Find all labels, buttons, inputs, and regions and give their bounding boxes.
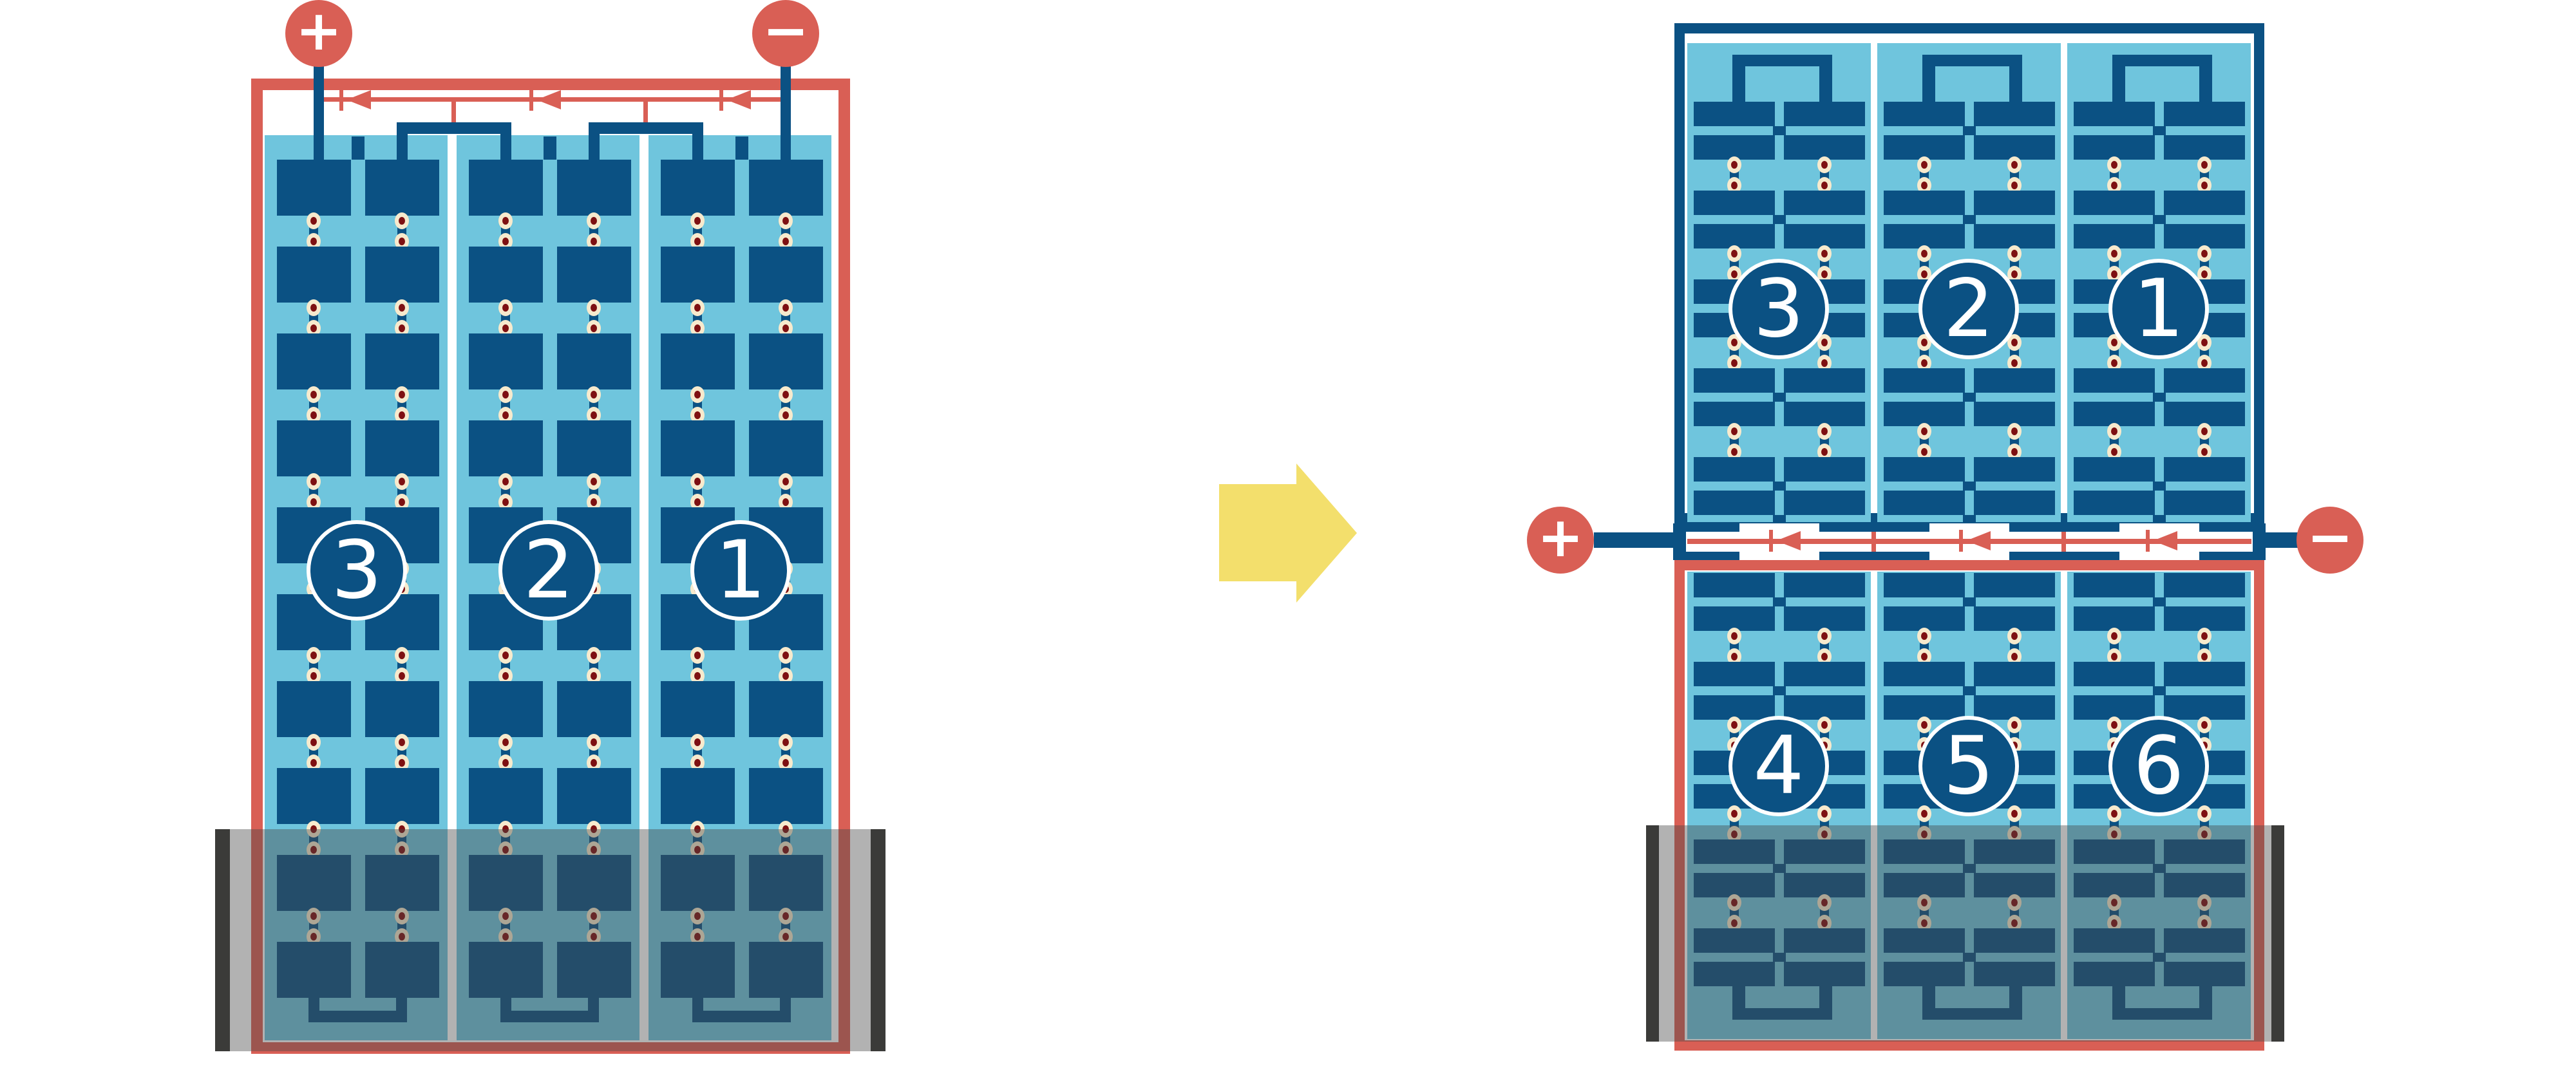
interstring-busbar-bridge xyxy=(397,122,511,160)
solar-cell xyxy=(749,160,823,216)
solder-dot-core xyxy=(399,651,405,659)
solder-dot-core xyxy=(782,324,789,332)
solar-cell xyxy=(277,768,351,824)
solder-dot xyxy=(2107,628,2121,644)
solder-dot xyxy=(587,647,601,664)
solder-dot-core xyxy=(694,738,701,746)
solder-dot-core xyxy=(2111,161,2117,169)
solder-dot xyxy=(307,734,321,751)
solder-dot xyxy=(395,734,409,751)
solder-dot-core xyxy=(1921,721,1927,729)
solder-dot xyxy=(1817,423,1832,440)
solar-cell xyxy=(2074,573,2155,597)
solar-cell xyxy=(469,768,543,824)
junction-end-tab xyxy=(1678,552,1739,560)
minus-icon: − xyxy=(762,0,809,64)
solar-cell xyxy=(2164,457,2245,482)
solder-dot xyxy=(587,386,601,403)
solder-dot xyxy=(307,212,321,229)
solder-dot-core xyxy=(1821,250,1828,258)
junction-busbar-tab xyxy=(2009,552,2119,560)
junction-busbar-tab xyxy=(1819,523,1929,532)
solder-dot xyxy=(690,386,705,403)
bypass-diode-icon xyxy=(719,89,755,111)
solar-cell xyxy=(1784,491,1865,515)
busbar-leg xyxy=(500,134,511,160)
solder-dot xyxy=(1817,628,1832,644)
solder-dot-core xyxy=(782,498,789,506)
right-negative-terminal: − xyxy=(2297,507,2363,574)
solder-dot xyxy=(498,212,513,229)
solder-dot xyxy=(2107,245,2121,262)
solder-dot-core xyxy=(502,324,509,332)
solder-dot xyxy=(395,386,409,403)
solar-cell xyxy=(2074,457,2155,482)
solar-cell xyxy=(277,247,351,303)
solder-dot xyxy=(587,299,601,316)
solder-dot xyxy=(1817,805,1832,822)
solar-cell xyxy=(557,160,631,216)
solar-cell xyxy=(1784,457,1865,482)
solder-dot-core xyxy=(2111,448,2117,456)
solder-dot-core xyxy=(694,651,701,659)
diode-tap-stub xyxy=(2061,530,2066,552)
center-link-stub xyxy=(1773,215,1786,224)
solar-cell xyxy=(661,247,735,303)
solder-dot-core xyxy=(1821,632,1828,640)
diode-cathode-bar xyxy=(1959,530,1963,552)
solder-dot-core xyxy=(1731,250,1738,258)
solder-dot xyxy=(1727,717,1741,733)
center-link-stub xyxy=(1773,597,1786,606)
solder-dot-core xyxy=(2011,448,2018,456)
center-link-stub xyxy=(1773,126,1786,135)
solder-dot xyxy=(307,386,321,403)
solder-dot-core xyxy=(694,324,701,332)
solder-dot-core xyxy=(694,238,701,245)
right-top-string-label-3: 3 xyxy=(1728,259,1829,359)
solder-dot-core xyxy=(502,478,509,485)
solder-dot-core xyxy=(1821,810,1828,818)
solar-cell xyxy=(469,247,543,303)
solder-dot-core xyxy=(2011,270,2018,278)
solar-cell xyxy=(1784,102,1865,126)
right-shading-bar-left xyxy=(1646,825,1659,1042)
solder-dot xyxy=(2007,245,2022,262)
center-link-stub xyxy=(1963,215,1976,224)
solder-dot-core xyxy=(782,304,789,312)
solar-cell xyxy=(661,333,735,389)
left-negative-wire xyxy=(781,61,791,160)
solder-dot-core xyxy=(2201,653,2208,660)
solar-cell xyxy=(1884,491,1965,515)
solder-dot-core xyxy=(2111,250,2117,258)
solder-dot xyxy=(2007,717,2022,733)
solar-cell xyxy=(749,247,823,303)
center-link-stub xyxy=(1963,393,1976,402)
solder-dot-core xyxy=(782,738,789,746)
solder-dot-core xyxy=(2111,359,2117,367)
minus-icon: − xyxy=(2307,504,2353,571)
solder-dot xyxy=(779,647,793,664)
solar-cell xyxy=(1884,457,1965,482)
center-link-stub xyxy=(2153,482,2166,491)
junction-feed-stub xyxy=(1963,515,1976,522)
solder-dot-core xyxy=(2011,339,2018,346)
diode-arrow xyxy=(346,90,371,109)
string-number: 5 xyxy=(1944,718,1994,814)
solar-cell xyxy=(1974,457,2055,482)
solder-dot xyxy=(1917,805,1931,822)
solder-dot-core xyxy=(2011,161,2018,169)
solder-dot xyxy=(1817,245,1832,262)
solar-cell xyxy=(1694,573,1775,597)
busbar-leg xyxy=(692,134,703,160)
solar-cell xyxy=(1884,102,1965,126)
solder-dot-core xyxy=(1731,632,1738,640)
solar-cell xyxy=(661,681,735,737)
solar-cell xyxy=(365,420,439,476)
solder-dot-core xyxy=(2201,448,2208,456)
solder-dot xyxy=(2197,423,2211,440)
right-positive-wire xyxy=(1594,532,1679,548)
solder-dot-core xyxy=(502,651,509,659)
solder-dot-core xyxy=(1731,653,1738,660)
solder-dot-core xyxy=(1921,632,1927,640)
solder-dot-core xyxy=(502,498,509,506)
solar-cell xyxy=(1784,662,1865,686)
bypass-diode-icon xyxy=(339,89,375,111)
solder-dot-core xyxy=(502,672,509,680)
solder-dot-core xyxy=(1731,182,1738,189)
solar-cell xyxy=(2074,191,2155,215)
solder-dot-core xyxy=(2011,810,2018,818)
solder-dot xyxy=(690,647,705,664)
solar-cell xyxy=(557,681,631,737)
diode-tap-stub xyxy=(451,102,456,124)
solder-dot xyxy=(498,734,513,751)
solar-cell xyxy=(277,420,351,476)
center-link-stub xyxy=(1963,126,1976,135)
right-negative-wire xyxy=(2260,532,2298,548)
solder-dot-core xyxy=(2111,182,2117,189)
busbar-leg xyxy=(397,134,408,160)
busbar-bar xyxy=(397,122,511,134)
junction-feed-stub xyxy=(1773,515,1786,522)
center-link-stub xyxy=(2153,126,2166,135)
left-string-label-3: 3 xyxy=(307,520,407,621)
solder-dot xyxy=(1917,628,1931,644)
solder-dot-core xyxy=(310,238,317,245)
solder-dot-core xyxy=(1821,182,1828,189)
solder-dot xyxy=(2107,805,2121,822)
solder-dot-core xyxy=(2111,653,2117,660)
solder-dot-core xyxy=(591,391,597,398)
diode-arrow xyxy=(1966,531,1991,550)
solder-dot xyxy=(587,212,601,229)
solder-dot-core xyxy=(502,759,509,767)
solder-dot-core xyxy=(1821,448,1828,456)
solder-dot-core xyxy=(591,738,597,746)
solder-dot-core xyxy=(399,672,405,680)
solder-dot xyxy=(2007,423,2022,440)
string-top-inner-tab xyxy=(544,136,556,160)
solar-cell xyxy=(365,333,439,389)
solder-dot-core xyxy=(1921,427,1927,435)
solar-cell xyxy=(2164,102,2245,126)
solar-cell xyxy=(277,160,351,216)
solder-dot-core xyxy=(1921,161,1927,169)
solder-dot xyxy=(2107,423,2121,440)
solder-dot-core xyxy=(399,478,405,485)
solar-cell xyxy=(661,160,735,216)
busbar-leg xyxy=(589,134,600,160)
diode-cathode-bar xyxy=(339,89,343,111)
solder-dot-core xyxy=(694,759,701,767)
solar-cell xyxy=(749,768,823,824)
solar-cell xyxy=(1784,573,1865,597)
solder-dot-core xyxy=(310,304,317,312)
solder-dot-core xyxy=(1921,270,1927,278)
solar-cell xyxy=(1974,573,2055,597)
solar-cell xyxy=(277,681,351,737)
solar-cell xyxy=(1974,491,2055,515)
bypass-diode-icon xyxy=(2146,530,2182,552)
solder-dot xyxy=(779,212,793,229)
solar-cell xyxy=(469,681,543,737)
solder-dot xyxy=(2007,156,2022,173)
solder-dot xyxy=(1917,156,1931,173)
string-number: 1 xyxy=(715,522,766,619)
solder-dot-core xyxy=(502,738,509,746)
solder-dot-core xyxy=(591,304,597,312)
solar-cell xyxy=(365,681,439,737)
solder-dot-core xyxy=(2011,427,2018,435)
solder-dot-core xyxy=(1921,339,1927,346)
solder-dot-core xyxy=(399,304,405,312)
solar-cell xyxy=(2074,662,2155,686)
solder-dot xyxy=(690,299,705,316)
solder-dot-core xyxy=(782,651,789,659)
solar-cell xyxy=(749,681,823,737)
solder-dot-core xyxy=(310,411,317,419)
solder-dot-core xyxy=(1731,721,1738,729)
junction-busbar-tab xyxy=(1819,552,1929,560)
solder-dot xyxy=(1817,156,1832,173)
solder-dot xyxy=(2007,805,2022,822)
diode-arrow xyxy=(1776,531,1801,550)
solder-dot-core xyxy=(1731,161,1738,169)
solar-cell xyxy=(2164,368,2245,393)
center-link-stub xyxy=(1963,482,1976,491)
solder-dot xyxy=(779,386,793,403)
solar-cell xyxy=(661,420,735,476)
solar-cell xyxy=(1694,662,1775,686)
solder-dot xyxy=(498,386,513,403)
right-positive-terminal: + xyxy=(1527,507,1594,574)
center-link-stub xyxy=(1963,686,1976,695)
junction-end-tab xyxy=(2199,552,2260,560)
solder-dot-core xyxy=(2011,653,2018,660)
solder-dot-core xyxy=(2201,721,2208,729)
solder-dot xyxy=(307,473,321,490)
solder-dot-core xyxy=(310,498,317,506)
solder-dot xyxy=(2197,628,2211,644)
solar-cell xyxy=(1974,662,2055,686)
solar-cell xyxy=(469,420,543,476)
solder-dot-core xyxy=(1921,250,1927,258)
solder-dot-core xyxy=(591,217,597,225)
solar-cell xyxy=(1884,662,1965,686)
solder-dot-core xyxy=(694,498,701,506)
busbar-bar xyxy=(589,122,703,134)
solder-dot-core xyxy=(1731,339,1738,346)
solder-dot-core xyxy=(2011,359,2018,367)
solder-dot xyxy=(1917,245,1931,262)
center-link-stub xyxy=(1773,393,1786,402)
junction-feed-stub xyxy=(2153,515,2166,522)
string-top-inner-tab xyxy=(352,136,365,160)
solder-dot-core xyxy=(782,478,789,485)
turnaround-busbar-bar xyxy=(1732,55,1832,66)
solder-dot xyxy=(498,473,513,490)
solar-cell xyxy=(1784,368,1865,393)
solder-dot xyxy=(1727,805,1741,822)
solar-cell xyxy=(1884,368,1965,393)
turnaround-busbar-leg xyxy=(2199,66,2212,103)
solder-dot-core xyxy=(782,411,789,419)
solder-dot-core xyxy=(1731,359,1738,367)
solder-dot-core xyxy=(694,672,701,680)
solar-cell xyxy=(469,160,543,216)
string-top-inner-tab xyxy=(735,136,748,160)
solar-cell xyxy=(365,247,439,303)
solder-dot-core xyxy=(1921,810,1927,818)
solder-dot-core xyxy=(591,324,597,332)
solar-cell xyxy=(2074,368,2155,393)
plus-icon: + xyxy=(296,0,342,64)
solar-cell xyxy=(2074,491,2155,515)
solder-dot-core xyxy=(591,759,597,767)
right-bottom-string-label-6: 6 xyxy=(2108,716,2209,816)
solder-dot-core xyxy=(2111,721,2117,729)
solder-dot-core xyxy=(399,217,405,225)
junction-busbar-tab xyxy=(2009,523,2119,532)
diode-cathode-bar xyxy=(529,89,533,111)
turnaround-busbar-leg xyxy=(1819,66,1832,103)
solder-dot-core xyxy=(1821,427,1828,435)
solar-cell xyxy=(749,420,823,476)
solar-cell xyxy=(365,768,439,824)
solar-cell xyxy=(1884,573,1965,597)
solder-dot xyxy=(2107,156,2121,173)
solder-dot xyxy=(2197,805,2211,822)
right-shading-overlay xyxy=(1659,825,2271,1042)
solder-dot-core xyxy=(310,217,317,225)
solder-dot-core xyxy=(1921,359,1927,367)
solder-dot-core xyxy=(310,391,317,398)
solder-dot-core xyxy=(310,651,317,659)
solar-cell xyxy=(1974,102,2055,126)
solder-dot xyxy=(2197,245,2211,262)
solder-dot-core xyxy=(399,324,405,332)
left-negative-terminal: − xyxy=(752,0,819,67)
solder-dot-core xyxy=(2201,339,2208,346)
solder-dot-core xyxy=(782,391,789,398)
solder-dot xyxy=(395,299,409,316)
solar-cell xyxy=(557,247,631,303)
solar-cell xyxy=(469,333,543,389)
turnaround-busbar-bar xyxy=(2112,55,2212,66)
solder-dot-core xyxy=(2011,721,2018,729)
solar-cell xyxy=(1884,191,1965,215)
solder-dot xyxy=(395,647,409,664)
solder-dot xyxy=(587,734,601,751)
solar-cell xyxy=(277,333,351,389)
string-number: 4 xyxy=(1754,718,1804,814)
turnaround-busbar-leg xyxy=(2112,66,2125,103)
solder-dot-core xyxy=(399,759,405,767)
turnaround-busbar-bar xyxy=(1922,55,2022,66)
solar-cell xyxy=(661,768,735,824)
solder-dot-core xyxy=(591,411,597,419)
solder-dot-core xyxy=(502,304,509,312)
arrow-body xyxy=(1219,484,1297,581)
solder-dot-core xyxy=(591,238,597,245)
junction-end-tab xyxy=(2199,523,2260,532)
solder-dot xyxy=(395,473,409,490)
left-shading-bar-left xyxy=(215,829,230,1051)
solder-dot xyxy=(587,473,601,490)
right-shading-bar-right xyxy=(2271,825,2284,1042)
module-rewiring-diagram: + − 3 2 1 xyxy=(0,0,2576,1068)
diode-arrow xyxy=(726,90,751,109)
center-link-stub xyxy=(2153,686,2166,695)
diode-tap-stub xyxy=(1871,530,1876,552)
diode-cathode-bar xyxy=(2146,530,2150,552)
solder-dot-core xyxy=(310,672,317,680)
solar-cell xyxy=(365,160,439,216)
solder-dot xyxy=(307,299,321,316)
solder-dot-core xyxy=(694,304,701,312)
solder-dot-core xyxy=(2201,270,2208,278)
solder-dot-core xyxy=(782,672,789,680)
solder-dot-core xyxy=(2201,250,2208,258)
solar-cell xyxy=(1784,191,1865,215)
solder-dot-core xyxy=(694,478,701,485)
solder-dot xyxy=(307,647,321,664)
diode-cathode-bar xyxy=(719,89,723,111)
solar-cell xyxy=(2164,191,2245,215)
center-link-stub xyxy=(2153,393,2166,402)
solar-cell xyxy=(749,333,823,389)
solder-dot-core xyxy=(1921,182,1927,189)
solar-cell xyxy=(1694,102,1775,126)
interstring-busbar-bridge xyxy=(589,122,703,160)
diode-tap-stub xyxy=(643,102,648,124)
solder-dot-core xyxy=(2011,182,2018,189)
solder-dot-core xyxy=(1821,270,1828,278)
diode-cathode-bar xyxy=(1769,530,1773,552)
solder-dot-core xyxy=(2201,161,2208,169)
solar-cell xyxy=(2164,573,2245,597)
diode-arrow xyxy=(536,90,561,109)
solder-dot-core xyxy=(1821,339,1828,346)
junction-end-tab xyxy=(1678,523,1739,532)
solder-dot-core xyxy=(399,738,405,746)
left-positive-terminal: + xyxy=(285,0,352,67)
solder-dot xyxy=(395,212,409,229)
